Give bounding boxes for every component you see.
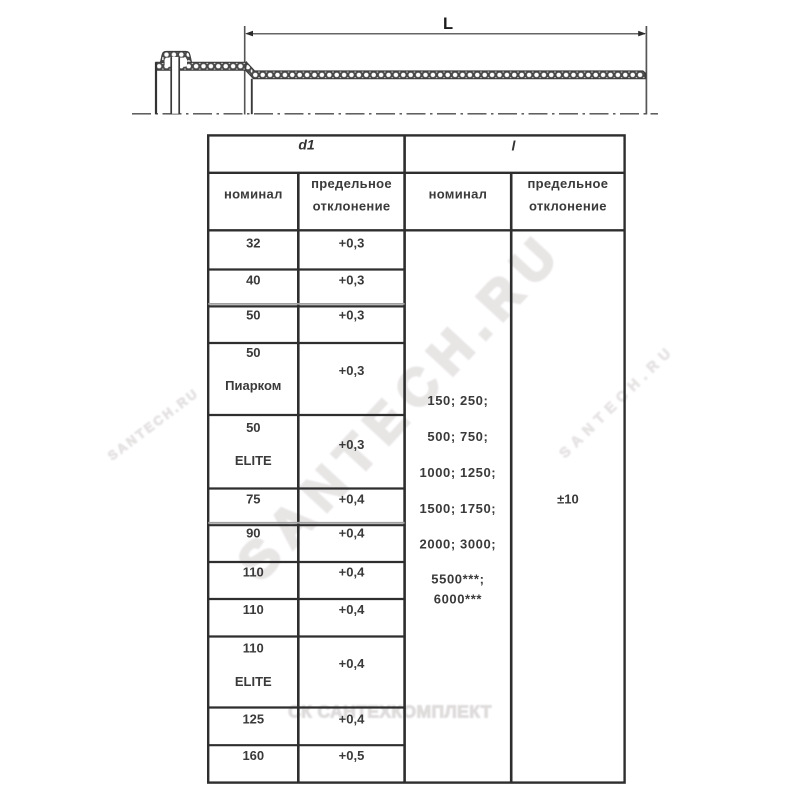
svg-text:+0,4: +0,4: [339, 492, 365, 507]
svg-text:6000***: 6000***: [434, 591, 483, 606]
svg-text:150; 250;: 150; 250;: [427, 393, 488, 408]
svg-text:+0,5: +0,5: [339, 748, 365, 763]
svg-text:+0,3: +0,3: [339, 273, 365, 288]
svg-text:отклонение: отклонение: [529, 198, 607, 213]
svg-text:160: 160: [242, 748, 264, 763]
svg-text:40: 40: [246, 273, 260, 288]
svg-text:50: 50: [246, 345, 260, 360]
svg-text:110: 110: [243, 565, 264, 580]
svg-text:Пиарком: Пиарком: [225, 378, 281, 393]
svg-text:ELITE: ELITE: [235, 453, 272, 468]
svg-text:±10: ±10: [557, 492, 579, 507]
svg-text:предельное: предельное: [311, 176, 392, 191]
svg-text:5500***;: 5500***;: [431, 572, 484, 587]
svg-text:2000; 3000;: 2000; 3000;: [420, 536, 497, 551]
svg-text:отклонение: отклонение: [313, 198, 391, 213]
svg-text:+0,4: +0,4: [339, 602, 365, 617]
svg-text:500; 750;: 500; 750;: [427, 429, 488, 444]
svg-text:+0,4: +0,4: [339, 565, 365, 580]
svg-text:125: 125: [242, 711, 264, 726]
svg-text:+0,4: +0,4: [339, 711, 365, 726]
svg-text:СК САНТЕХКОМПЛЕКТ: СК САНТЕХКОМПЛЕКТ: [288, 702, 492, 722]
svg-text:+0,3: +0,3: [339, 235, 365, 250]
svg-text:1000; 1250;: 1000; 1250;: [420, 465, 497, 480]
svg-text:предельное: предельное: [528, 176, 609, 191]
svg-text:+0,3: +0,3: [339, 437, 365, 452]
svg-text:+0,3: +0,3: [339, 363, 365, 378]
svg-text:+0,4: +0,4: [339, 656, 365, 671]
svg-text:1500; 1750;: 1500; 1750;: [420, 501, 497, 516]
svg-text:110: 110: [243, 640, 264, 655]
svg-text:110: 110: [243, 602, 264, 617]
svg-text:номинал: номинал: [429, 187, 488, 202]
svg-text:+0,4: +0,4: [339, 526, 365, 541]
svg-text:50: 50: [246, 308, 260, 323]
svg-text:+0,3: +0,3: [339, 308, 365, 323]
svg-text:75: 75: [246, 492, 260, 507]
svg-text:номинал: номинал: [224, 187, 283, 202]
svg-text:90: 90: [246, 526, 260, 541]
svg-text:L: L: [443, 15, 453, 33]
svg-text:50: 50: [246, 420, 260, 435]
svg-text:d1: d1: [298, 137, 315, 153]
svg-text:32: 32: [246, 235, 260, 250]
svg-text:ELITE: ELITE: [235, 674, 272, 689]
